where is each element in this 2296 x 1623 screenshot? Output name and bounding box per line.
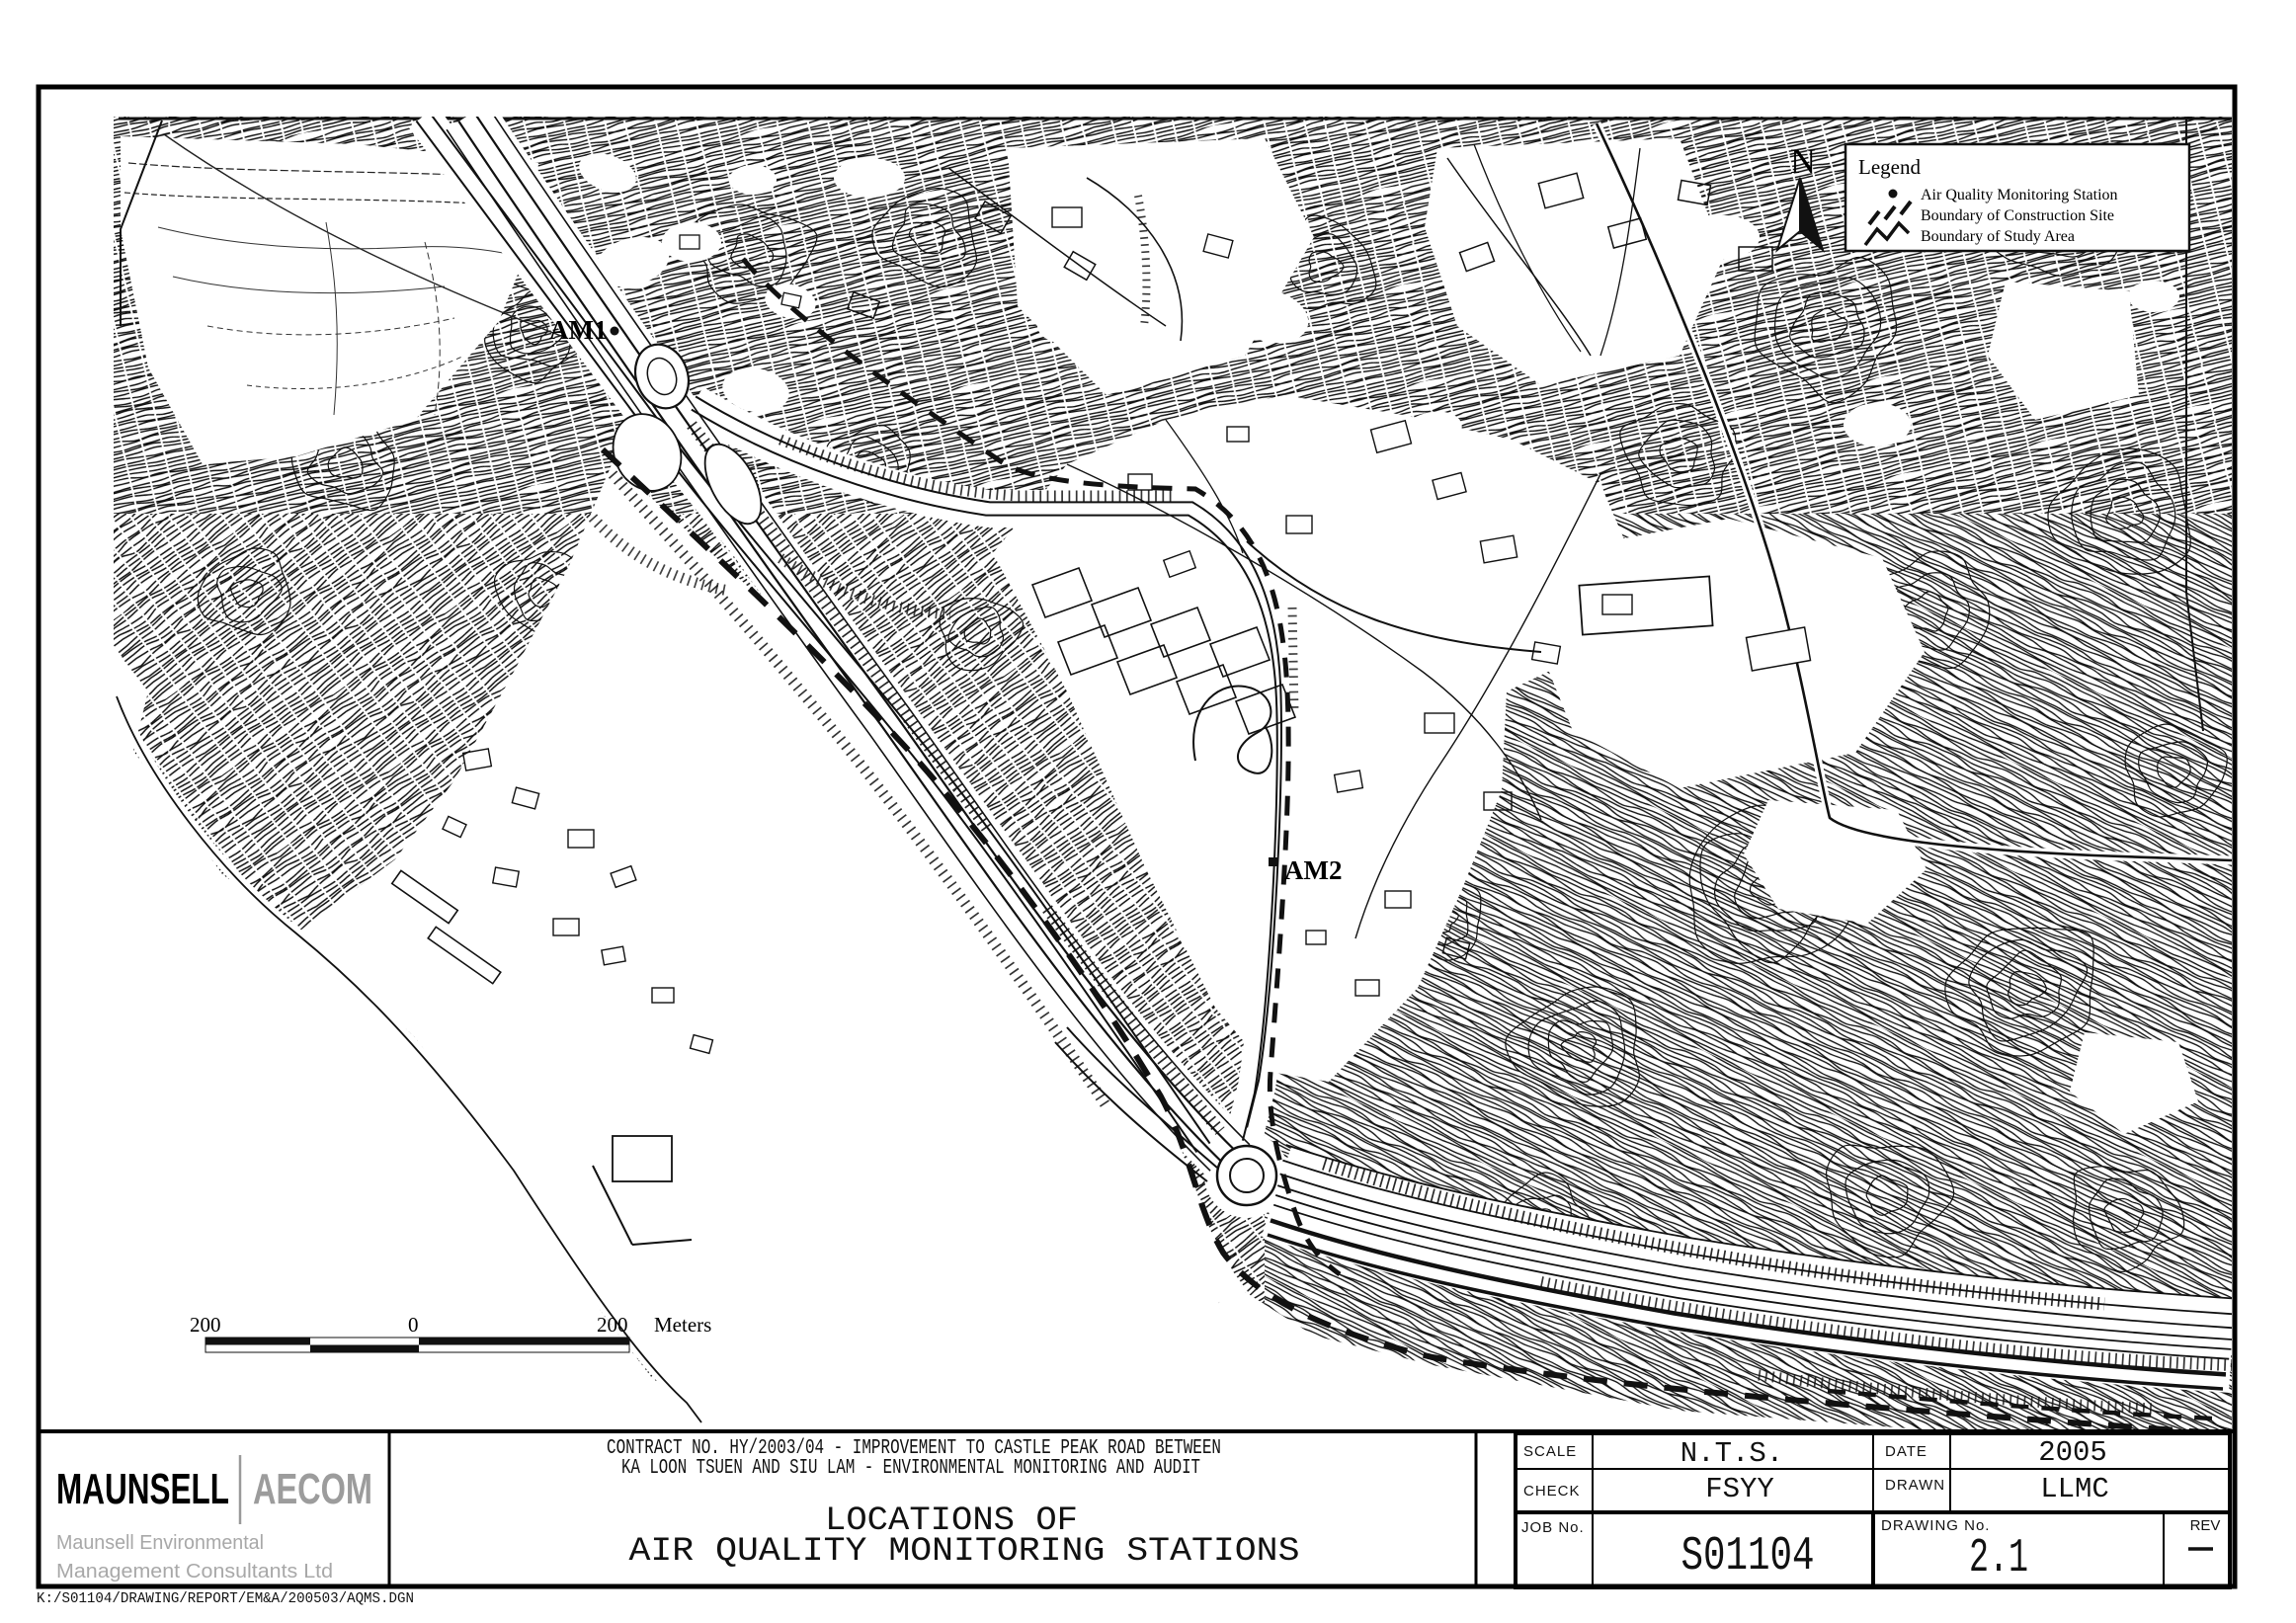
svg-text:FSYY: FSYY bbox=[1705, 1473, 1774, 1505]
svg-text:Air Quality Monitoring Station: Air Quality Monitoring Station bbox=[1921, 187, 2118, 203]
svg-text:N.T.S.: N.T.S. bbox=[1681, 1437, 1783, 1470]
svg-text:Meters: Meters bbox=[654, 1313, 711, 1337]
svg-text:2005: 2005 bbox=[2038, 1436, 2107, 1469]
svg-text:AM1: AM1 bbox=[549, 315, 607, 345]
svg-text:SCALE: SCALE bbox=[1523, 1443, 1577, 1460]
svg-text:JOB No.: JOB No. bbox=[1521, 1519, 1585, 1536]
svg-text:2.1: 2.1 bbox=[1969, 1532, 2028, 1585]
svg-text:CHECK: CHECK bbox=[1523, 1483, 1581, 1500]
svg-text:KA LOON TSUEN AND SIU LAM - EN: KA LOON TSUEN AND SIU LAM - ENVIRONMENTA… bbox=[621, 1457, 1200, 1480]
svg-text:MAUNSELL: MAUNSELL bbox=[56, 1465, 229, 1513]
svg-text:Maunsell Environmental: Maunsell Environmental bbox=[56, 1532, 264, 1554]
svg-text:AIR QUALITY MONITORING STATION: AIR QUALITY MONITORING STATIONS bbox=[629, 1533, 1300, 1571]
svg-text:Boundary of Construction Site: Boundary of Construction Site bbox=[1921, 207, 2114, 224]
svg-text:Legend: Legend bbox=[1858, 155, 1921, 179]
svg-text:LLMC: LLMC bbox=[2040, 1473, 2109, 1505]
svg-text:DATE: DATE bbox=[1885, 1443, 1927, 1460]
svg-text:REV: REV bbox=[2190, 1517, 2221, 1534]
svg-text:200: 200 bbox=[597, 1313, 628, 1337]
svg-text:DRAWN: DRAWN bbox=[1885, 1477, 1945, 1494]
svg-text:S01104: S01104 bbox=[1681, 1530, 1815, 1583]
svg-text:K:/S01104/DRAWING/REPORT/EM&A/: K:/S01104/DRAWING/REPORT/EM&A/200503/AQM… bbox=[37, 1591, 414, 1607]
svg-text:200: 200 bbox=[190, 1313, 221, 1337]
svg-text:N: N bbox=[1790, 141, 1816, 181]
svg-text:0: 0 bbox=[408, 1313, 419, 1337]
svg-text:Boundary of Study Area: Boundary of Study Area bbox=[1921, 228, 2075, 245]
svg-text:AM2: AM2 bbox=[1284, 855, 1342, 885]
svg-text:Management Consultants Ltd: Management Consultants Ltd bbox=[56, 1561, 333, 1582]
svg-text:AECOM: AECOM bbox=[253, 1465, 372, 1513]
